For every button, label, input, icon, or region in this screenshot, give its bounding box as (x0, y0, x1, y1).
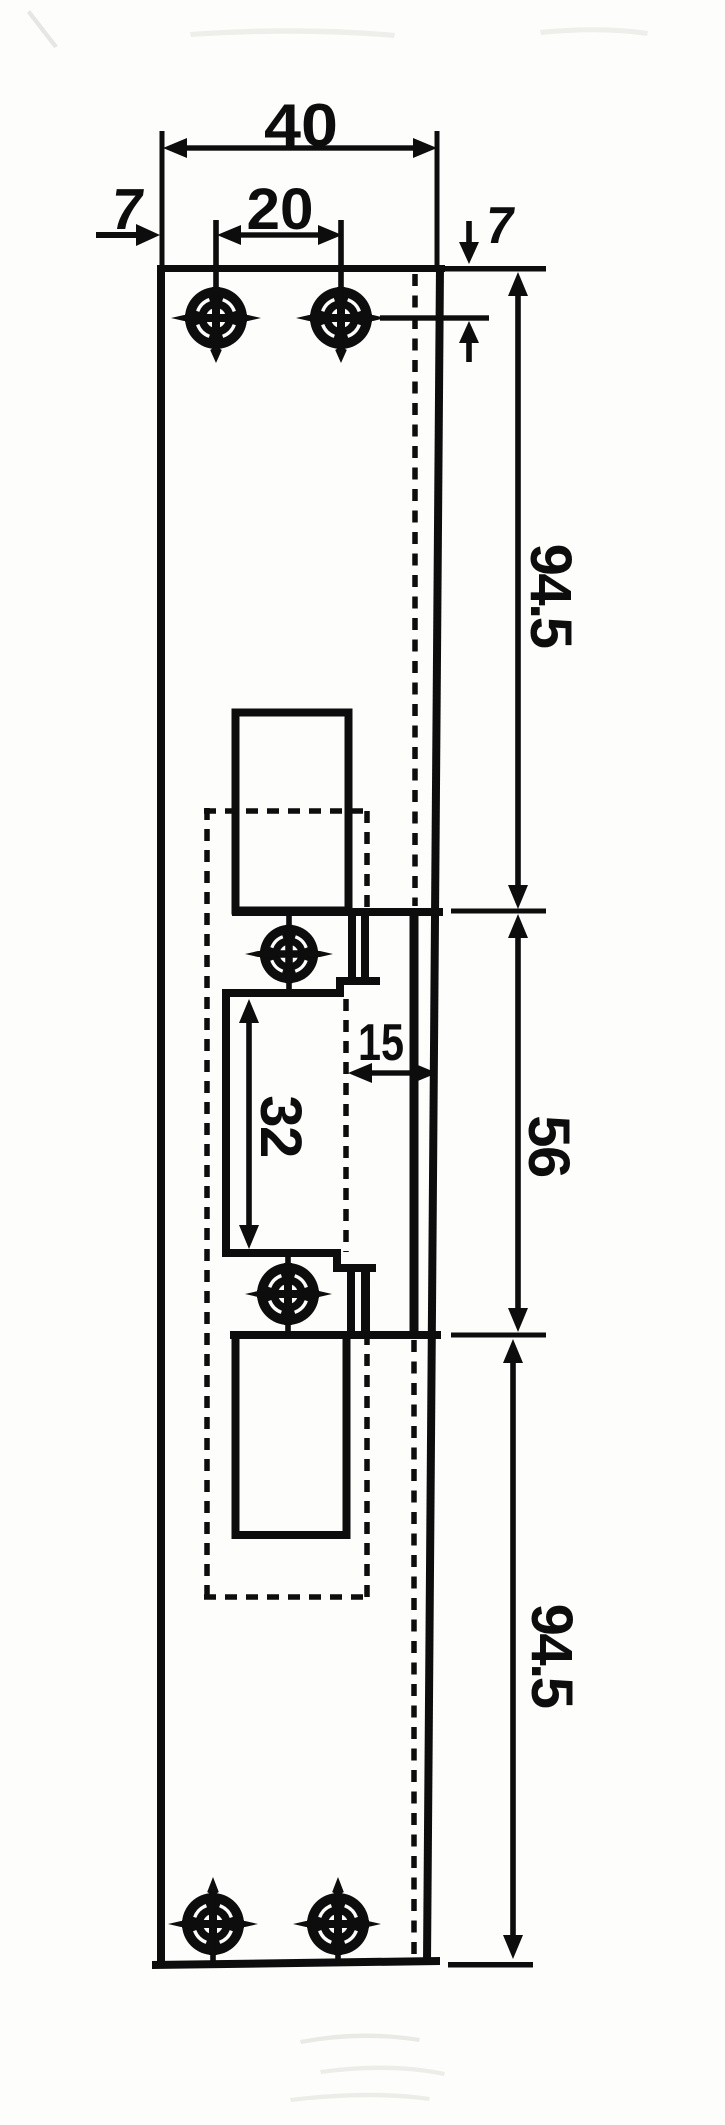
svg-text:15: 15 (358, 1014, 404, 1072)
svg-text:94.5: 94.5 (518, 544, 583, 648)
svg-text:94.5: 94.5 (519, 1604, 584, 1708)
svg-text:32: 32 (248, 1095, 313, 1157)
svg-text:20: 20 (247, 177, 314, 242)
svg-text:56: 56 (516, 1115, 581, 1177)
